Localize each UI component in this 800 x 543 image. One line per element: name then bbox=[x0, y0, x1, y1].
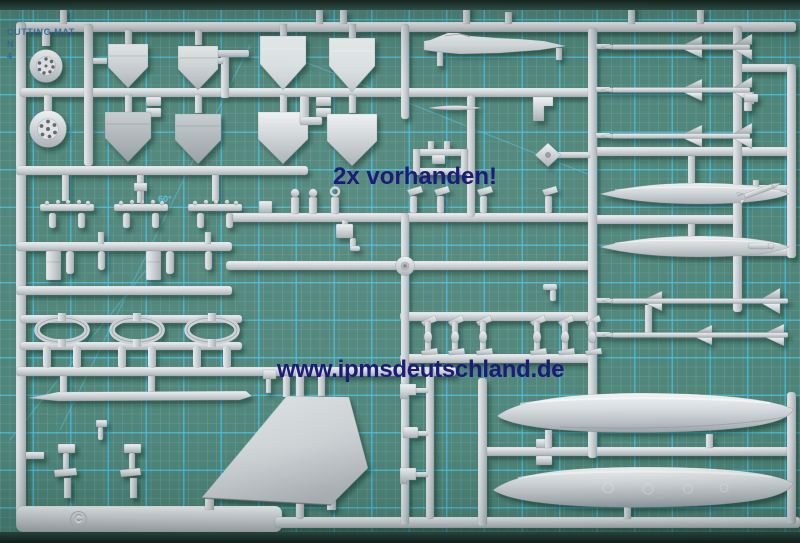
missile-part bbox=[601, 34, 752, 149]
mat-print-label: CUTTING MAT N 4 bbox=[7, 26, 75, 62]
mat-angle-label: 60° bbox=[158, 194, 172, 204]
watermark-text: www.ipmsdeutschland.de bbox=[277, 356, 564, 384]
mat-print-line3: 4 bbox=[7, 50, 75, 62]
bomb-rack-part bbox=[40, 183, 242, 228]
tail-fin-part bbox=[202, 396, 368, 505]
main-wheel-part bbox=[30, 111, 67, 148]
mat-top-edge bbox=[0, 0, 800, 10]
diamond-part bbox=[535, 143, 561, 167]
hub-part bbox=[396, 257, 415, 276]
note-text: 2x vorhanden! bbox=[333, 163, 497, 191]
mat-bottom-edge bbox=[0, 532, 800, 543]
sprue-gate-letter: C bbox=[70, 511, 87, 528]
missile-part bbox=[602, 288, 788, 346]
photo-model-kit-sprue: CUTTING MAT N 4 60° 2x vorhanden! www.ip… bbox=[0, 0, 800, 543]
antenna-parts bbox=[407, 186, 558, 301]
fuselage-part bbox=[424, 33, 566, 121]
mat-print-line1: CUTTING MAT bbox=[7, 26, 75, 38]
sprue-frame-svg bbox=[0, 0, 800, 543]
block-parts bbox=[46, 251, 212, 280]
mat-print-line2: N bbox=[7, 38, 75, 50]
